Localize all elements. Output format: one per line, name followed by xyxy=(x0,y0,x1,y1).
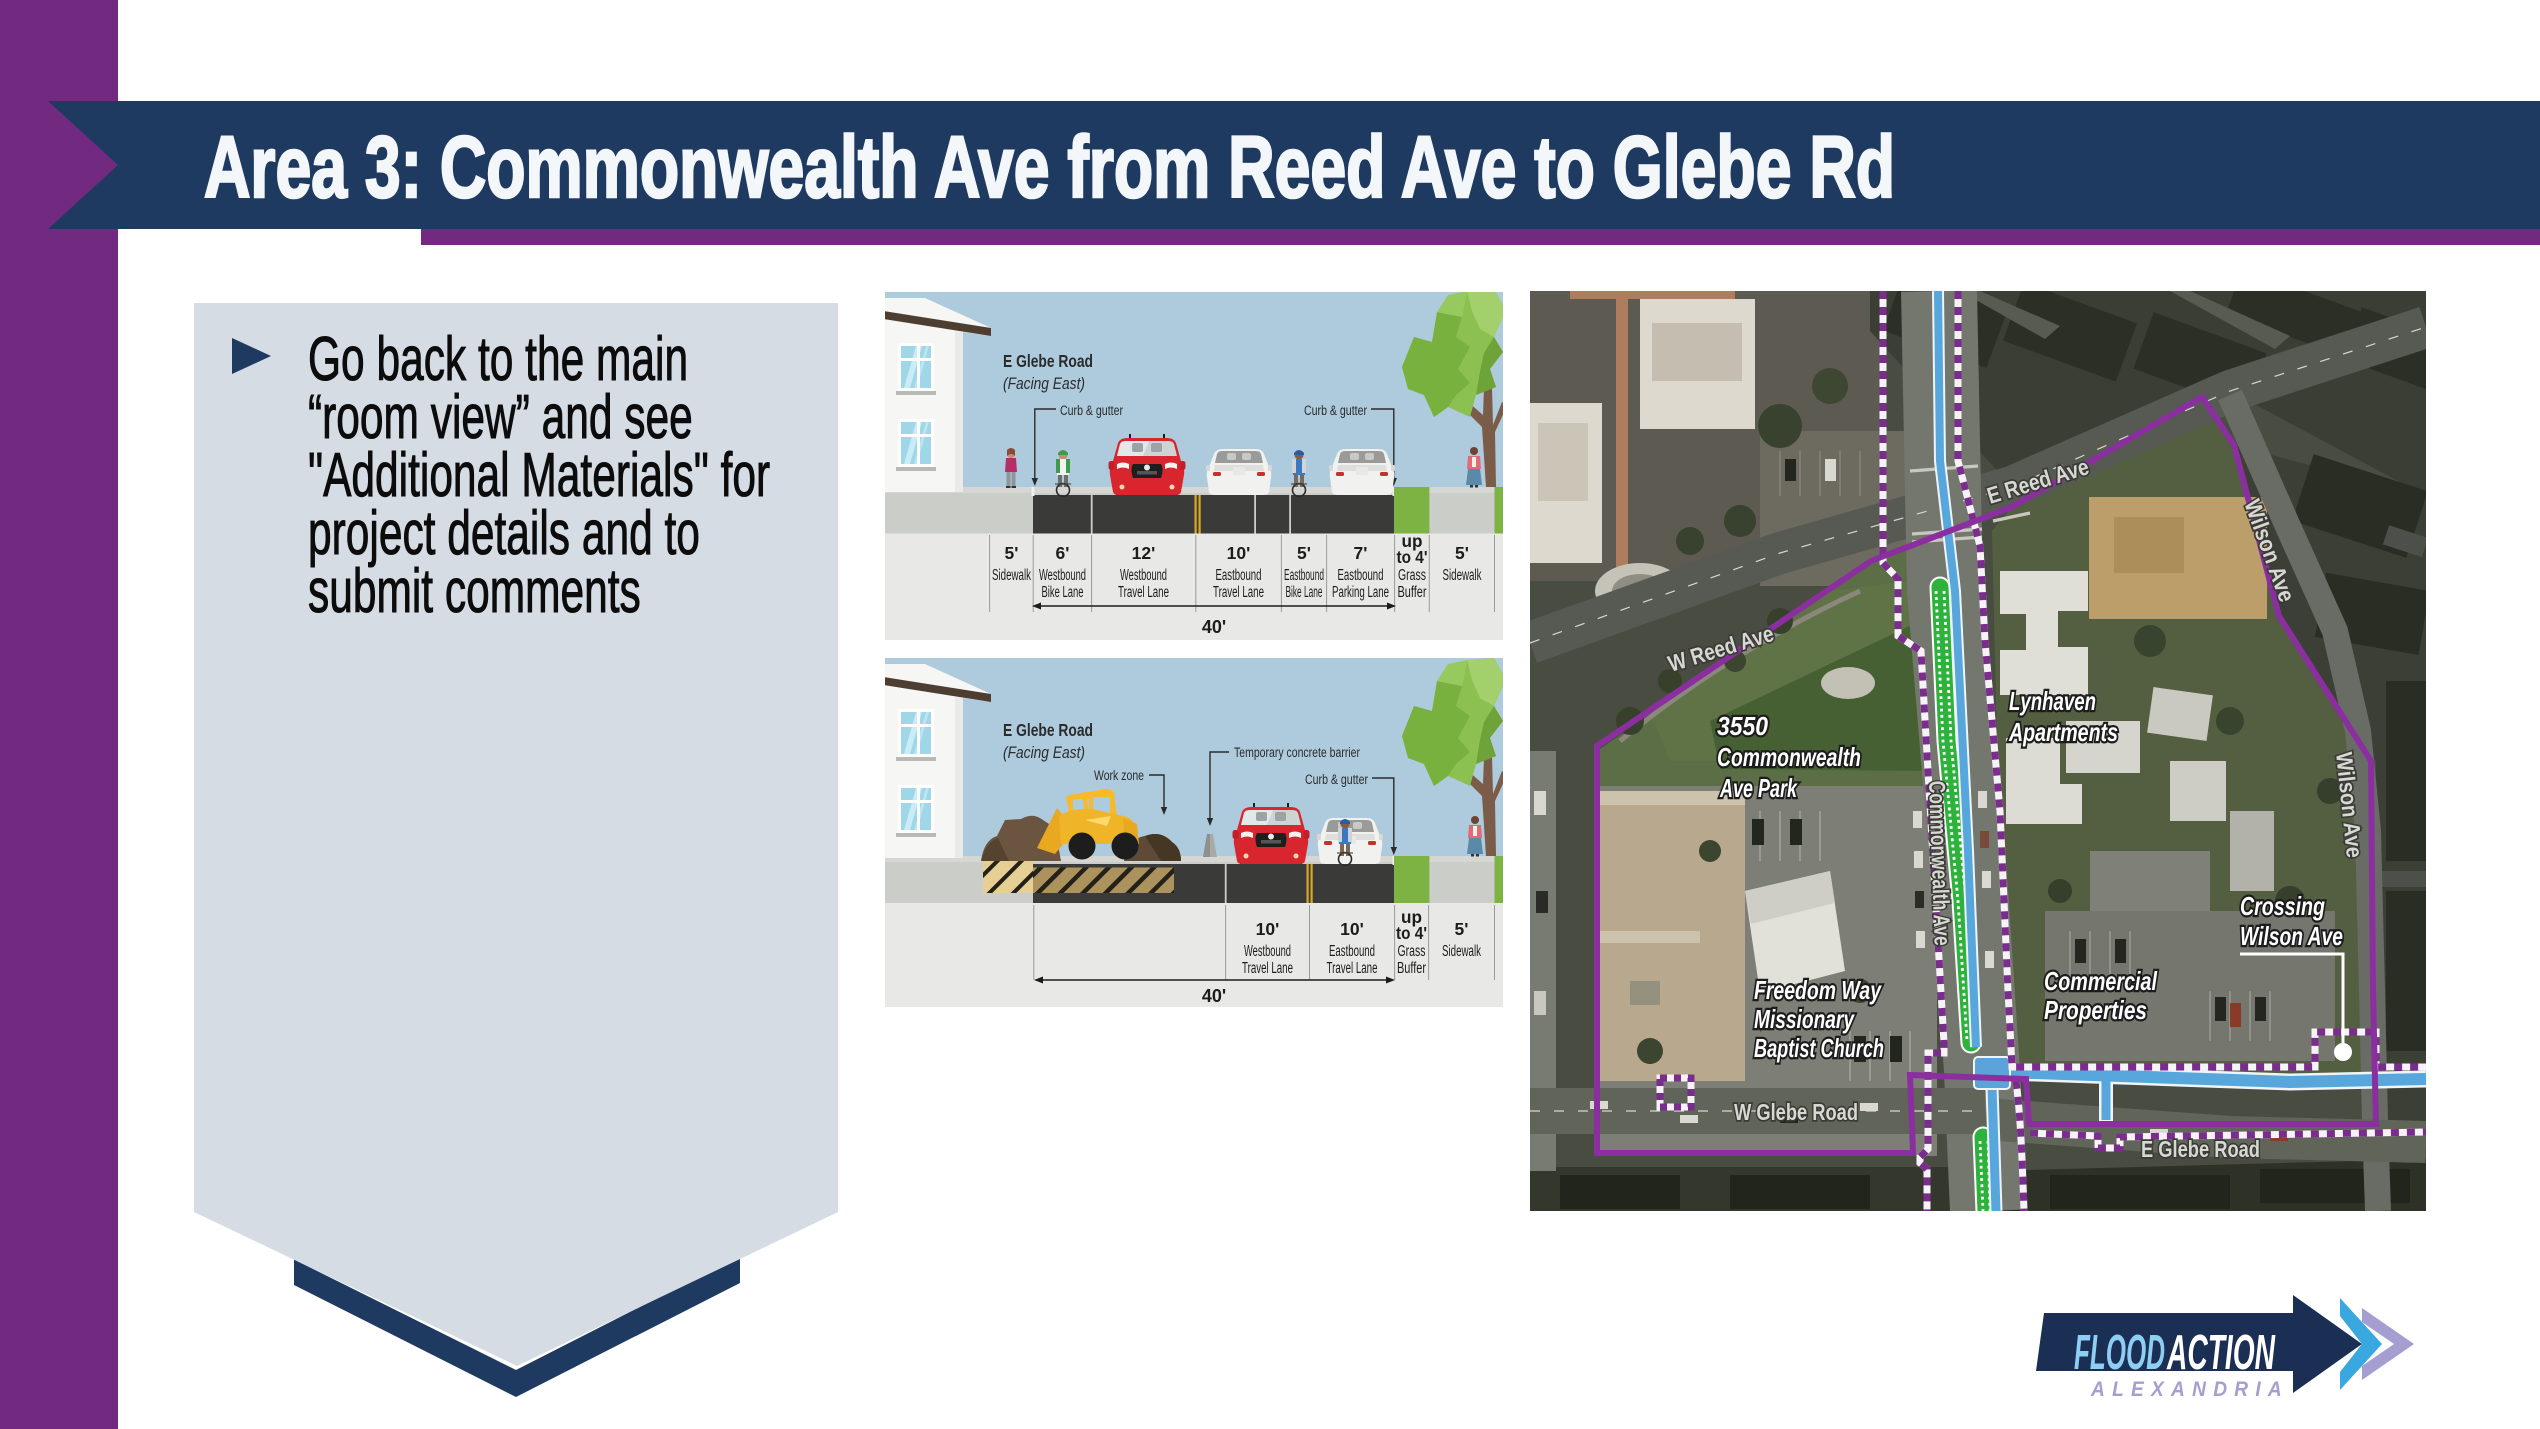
svg-text:E Glebe Road: E Glebe Road xyxy=(2141,1136,2260,1162)
svg-text:Bike Lane: Bike Lane xyxy=(1286,584,1323,601)
svg-text:Commonwealth: Commonwealth xyxy=(1717,742,1861,772)
svg-text:Curb & gutter: Curb & gutter xyxy=(1060,403,1123,418)
svg-text:40': 40' xyxy=(1202,617,1226,637)
svg-text:Travel Lane: Travel Lane xyxy=(1118,584,1169,601)
svg-text:5': 5' xyxy=(1455,919,1469,939)
svg-text:Ave Park: Ave Park xyxy=(1719,773,1798,803)
svg-text:Westbound: Westbound xyxy=(1120,567,1167,584)
svg-text:E Glebe Road: E Glebe Road xyxy=(1003,351,1093,371)
svg-text:Curb & gutter: Curb & gutter xyxy=(1304,403,1367,418)
svg-text:Grass: Grass xyxy=(1398,567,1426,584)
svg-text:Buffer: Buffer xyxy=(1398,584,1427,601)
svg-text:(Facing East): (Facing East) xyxy=(1003,744,1085,762)
svg-text:Lynhaven: Lynhaven xyxy=(2009,686,2096,716)
svg-text:Bike Lane: Bike Lane xyxy=(1042,584,1084,601)
svg-text:Westbound: Westbound xyxy=(1039,567,1086,584)
svg-text:3550: 3550 xyxy=(1717,711,1768,741)
svg-text:Freedom Way: Freedom Way xyxy=(1754,975,1882,1005)
svg-text:Eastbound: Eastbound xyxy=(1216,567,1262,584)
svg-text:Commercial: Commercial xyxy=(2044,966,2158,996)
svg-text:Westbound: Westbound xyxy=(1244,943,1291,960)
svg-text:5': 5' xyxy=(1297,543,1311,563)
svg-text:Missionary: Missionary xyxy=(1754,1004,1855,1034)
svg-text:Curb & gutter: Curb & gutter xyxy=(1305,772,1368,787)
svg-text:ALEXANDRIA: ALEXANDRIA xyxy=(2090,1378,2289,1401)
svg-text:10': 10' xyxy=(1340,919,1364,939)
svg-text:W Glebe Road: W Glebe Road xyxy=(1734,1099,1858,1125)
svg-text:Sidewalk: Sidewalk xyxy=(1443,567,1482,584)
svg-text:Eastbound: Eastbound xyxy=(1338,567,1384,584)
svg-text:Temporary concrete barrier: Temporary concrete barrier xyxy=(1234,745,1360,760)
svg-text:5': 5' xyxy=(1005,543,1019,563)
svg-text:Sidewalk: Sidewalk xyxy=(992,567,1031,584)
svg-text:Travel Lane: Travel Lane xyxy=(1242,960,1293,977)
svg-text:Work zone: Work zone xyxy=(1094,768,1144,783)
svg-text:(Facing East): (Facing East) xyxy=(1003,375,1085,393)
svg-text:Apartments: Apartments xyxy=(2008,717,2118,747)
svg-text:Parking Lane: Parking Lane xyxy=(1332,584,1389,601)
svg-text:Wilson Ave: Wilson Ave xyxy=(2240,921,2343,951)
svg-text:7': 7' xyxy=(1354,543,1368,563)
svg-text:Eastbound: Eastbound xyxy=(1284,567,1324,584)
svg-text:12': 12' xyxy=(1132,543,1156,563)
svg-text:Eastbound: Eastbound xyxy=(1329,943,1375,960)
svg-text:10': 10' xyxy=(1256,919,1280,939)
svg-text:E Glebe Road: E Glebe Road xyxy=(1003,720,1093,740)
svg-text:Sidewalk: Sidewalk xyxy=(1442,943,1481,960)
svg-text:10': 10' xyxy=(1227,543,1251,563)
svg-text:Properties: Properties xyxy=(2044,995,2147,1025)
svg-text:Travel Lane: Travel Lane xyxy=(1327,960,1378,977)
svg-text:Grass: Grass xyxy=(1398,943,1426,960)
svg-text:40': 40' xyxy=(1202,986,1226,1006)
svg-text:ACTION: ACTION xyxy=(2166,1326,2275,1380)
svg-text:to 4': to 4' xyxy=(1397,547,1428,567)
svg-text:Travel Lane: Travel Lane xyxy=(1213,584,1264,601)
svg-text:6': 6' xyxy=(1056,543,1070,563)
svg-text:Crossing: Crossing xyxy=(2240,891,2325,921)
svg-text:Buffer: Buffer xyxy=(1397,960,1426,977)
svg-text:5': 5' xyxy=(1455,543,1469,563)
svg-text:FLOOD: FLOOD xyxy=(2074,1326,2165,1380)
svg-text:Baptist Church: Baptist Church xyxy=(1754,1033,1884,1063)
svg-text:to 4': to 4' xyxy=(1396,923,1427,943)
